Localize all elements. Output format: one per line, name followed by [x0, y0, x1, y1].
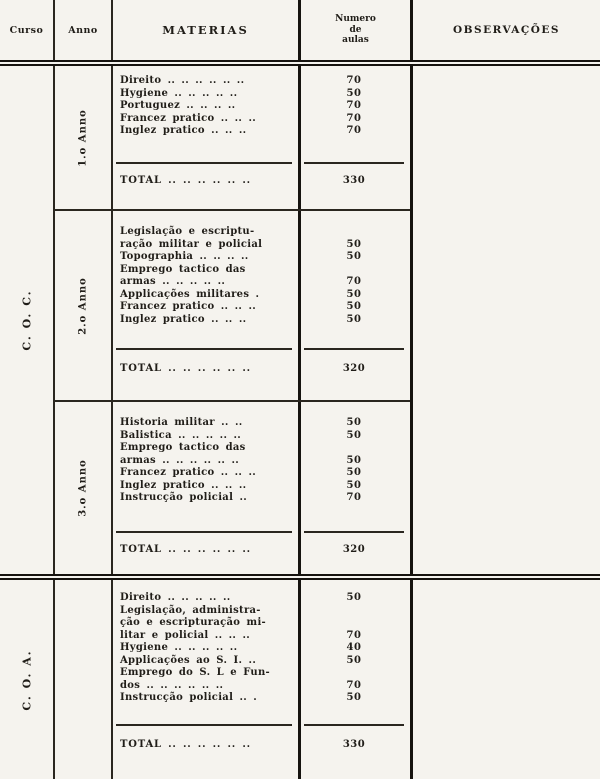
- header-materias: MATERIAS: [113, 0, 298, 60]
- header-numero-de-aulas: Numero de aulas: [298, 0, 410, 60]
- subject-list: Direito .. .. .. .. ..50Legislação, admi…: [113, 580, 410, 705]
- subject-hours: 50: [298, 592, 410, 605]
- materias-and-hours: Direito .. .. .. .. ..50Legislação, admi…: [113, 580, 410, 779]
- subject-row: Inglez pratico .. .. ..50: [113, 480, 410, 493]
- subject-list: Historia militar .. ..50Balistica .. .. …: [113, 402, 410, 505]
- total-row: TOTAL .. .. .. .. .. ..320: [113, 544, 410, 557]
- header-observacoes: OBSERVAÇÕES: [410, 0, 600, 60]
- subject-row: Hygiene .. .. .. .. ..40: [113, 642, 410, 655]
- subject-row: Instrucção policial .. .50: [113, 692, 410, 705]
- subject-name: Hygiene .. .. .. .. ..: [113, 88, 298, 101]
- subject-row: Instrucção policial ..70: [113, 492, 410, 505]
- subject-list: Direito .. .. .. .. .. ..70Hygiene .. ..…: [113, 66, 410, 138]
- total-label: TOTAL .. .. .. .. .. ..: [113, 363, 298, 376]
- subject-hours: 50: [298, 467, 410, 480]
- header-observacoes-label: OBSERVAÇÕES: [453, 24, 560, 36]
- subject-name: Francez pratico .. .. ..: [113, 467, 298, 480]
- total-row: TOTAL .. .. .. .. .. ..330: [113, 175, 410, 188]
- subject-name: Instrucção policial .. .: [113, 692, 298, 705]
- year-section: Direito .. .. .. .. ..50Legislação, admi…: [55, 580, 600, 779]
- subject-name: Applicações militares .: [113, 289, 298, 302]
- subject-row: Legislação e escriptu- ração militar e p…: [113, 226, 410, 251]
- observacoes-cell: [410, 66, 600, 211]
- curso-label: C. O. C.: [20, 289, 33, 350]
- course-group-body: Direito .. .. .. .. ..50Legislação, admi…: [55, 580, 600, 779]
- year-section: 1.o AnnoDireito .. .. .. .. .. ..70Hygie…: [55, 66, 600, 211]
- subject-hours: 50: [298, 314, 410, 327]
- subject-name: Direito .. .. .. .. .. ..: [113, 75, 298, 88]
- header-curso-label: Curso: [10, 25, 44, 36]
- total-divider: [113, 348, 410, 350]
- subject-hours: 70: [298, 125, 410, 138]
- total-divider-left-segment: [116, 162, 292, 164]
- subject-row: Portuguez .. .. .. ..70: [113, 100, 410, 113]
- total-label: TOTAL .. .. .. .. .. ..: [113, 739, 298, 752]
- subject-name: Hygiene .. .. .. .. ..: [113, 642, 298, 655]
- subject-hours: 70: [298, 680, 410, 693]
- subject-hours: 50: [298, 251, 410, 264]
- year-section: 2.o AnnoLegislação e escriptu- ração mil…: [55, 211, 600, 402]
- table-body: C. O. C.1.o AnnoDireito .. .. .. .. .. .…: [0, 66, 600, 779]
- subject-hours: 50: [298, 455, 410, 468]
- total-divider: [113, 531, 410, 533]
- year-section: 3.o AnnoHistoria militar .. ..50Balistic…: [55, 402, 600, 574]
- anno-label: 2.o Anno: [78, 277, 89, 335]
- subject-hours: 70: [298, 75, 410, 88]
- subject-name: Inglez pratico .. .. ..: [113, 314, 298, 327]
- subject-row: Emprego tactico das armas .. .. .. .. ..…: [113, 264, 410, 289]
- total-divider-left-segment: [116, 531, 292, 533]
- subject-hours: 50: [298, 655, 410, 668]
- header-numero-label: Numero de aulas: [335, 14, 376, 46]
- scanned-curriculum-table: Curso Anno MATERIAS Numero de aulas OBSE…: [0, 0, 600, 779]
- subject-row: Direito .. .. .. .. .. ..70: [113, 75, 410, 88]
- header-materias-label: MATERIAS: [162, 23, 249, 37]
- header-anno-label: Anno: [68, 25, 98, 36]
- total-hours: 330: [298, 175, 410, 188]
- subject-name: Instrucção policial ..: [113, 492, 298, 505]
- subject-row: Applicações militares .50: [113, 289, 410, 302]
- total-hours: 320: [298, 363, 410, 376]
- curso-cell: C. O. A.: [0, 580, 55, 779]
- materias-numero-divider-line: [298, 211, 301, 400]
- total-divider-left-segment: [116, 724, 292, 726]
- curso-cell: C. O. C.: [0, 66, 55, 574]
- total-row: TOTAL .. .. .. .. .. ..320: [113, 363, 410, 376]
- subject-row: Emprego do S. L e Fun- dos .. .. .. .. .…: [113, 667, 410, 692]
- subject-hours: 50: [298, 289, 410, 302]
- header-anno: Anno: [55, 0, 113, 60]
- subject-name: Francez pratico .. .. ..: [113, 113, 298, 126]
- total-hours: 330: [298, 739, 410, 752]
- subject-name: Balistica .. .. .. .. ..: [113, 430, 298, 443]
- observacoes-cell: [410, 402, 600, 574]
- subject-name: Inglez pratico .. .. ..: [113, 125, 298, 138]
- total-row: TOTAL .. .. .. .. .. ..330: [113, 739, 410, 752]
- materias-numero-divider-line: [298, 580, 301, 779]
- subject-name: Emprego tactico das armas .. .. .. .. ..…: [113, 442, 298, 467]
- total-divider: [113, 724, 410, 726]
- subject-name: Emprego tactico das armas .. .. .. .. ..: [113, 264, 298, 289]
- total-hours: 320: [298, 544, 410, 557]
- subject-row: Topographia .. .. .. ..50: [113, 251, 410, 264]
- subject-hours: 50: [298, 430, 410, 443]
- subject-row: Emprego tactico das armas .. .. .. .. ..…: [113, 442, 410, 467]
- subject-row: Historia militar .. ..50: [113, 417, 410, 430]
- subject-list: Legislação e escriptu- ração militar e p…: [113, 211, 410, 326]
- subject-hours: 70: [298, 630, 410, 643]
- subject-row: Applicações ao S. I. ..50: [113, 655, 410, 668]
- subject-row: Francez pratico .. .. ..50: [113, 301, 410, 314]
- anno-cell: [55, 580, 113, 779]
- subject-name: Historia militar .. ..: [113, 417, 298, 430]
- materias-numero-divider-line: [298, 66, 301, 209]
- subject-hours: 70: [298, 492, 410, 505]
- observacoes-cell: [410, 580, 600, 779]
- subject-row: Francez pratico .. .. ..70: [113, 113, 410, 126]
- subject-hours: 50: [298, 692, 410, 705]
- total-divider-right-segment: [304, 348, 404, 350]
- curso-label: C. O. A.: [20, 649, 33, 710]
- materias-and-hours: Legislação e escriptu- ração militar e p…: [113, 211, 410, 402]
- subject-name: Legislação e escriptu- ração militar e p…: [113, 226, 298, 251]
- header-curso: Curso: [0, 0, 55, 60]
- total-divider: [113, 162, 410, 164]
- subject-row: Hygiene .. .. .. .. ..50: [113, 88, 410, 101]
- observacoes-cell: [410, 211, 600, 402]
- subject-name: Francez pratico .. .. ..: [113, 301, 298, 314]
- subject-hours: 70: [298, 100, 410, 113]
- subject-row: Francez pratico .. .. ..50: [113, 467, 410, 480]
- subject-name: Portuguez .. .. .. ..: [113, 100, 298, 113]
- subject-row: Balistica .. .. .. .. ..50: [113, 430, 410, 443]
- total-divider-right-segment: [304, 531, 404, 533]
- subject-name: Topographia .. .. .. ..: [113, 251, 298, 264]
- subject-row: Legislação, administra- ção e escriptura…: [113, 605, 410, 643]
- subject-name: Inglez pratico .. .. ..: [113, 480, 298, 493]
- anno-cell: 3.o Anno: [55, 402, 113, 574]
- anno-cell: 2.o Anno: [55, 211, 113, 402]
- materias-and-hours: Historia militar .. ..50Balistica .. .. …: [113, 402, 410, 574]
- subject-row: Inglez pratico .. .. ..70: [113, 125, 410, 138]
- total-label: TOTAL .. .. .. .. .. ..: [113, 175, 298, 188]
- subject-hours: 50: [298, 239, 410, 252]
- course-group: C. O. A.Direito .. .. .. .. ..50Legislaç…: [0, 580, 600, 779]
- subject-hours: 50: [298, 417, 410, 430]
- course-group: C. O. C.1.o AnnoDireito .. .. .. .. .. .…: [0, 66, 600, 574]
- anno-label: 3.o Anno: [78, 459, 89, 517]
- total-divider-right-segment: [304, 724, 404, 726]
- table-header: Curso Anno MATERIAS Numero de aulas OBSE…: [0, 0, 600, 60]
- subject-hours: 50: [298, 88, 410, 101]
- course-group-body: 1.o AnnoDireito .. .. .. .. .. ..70Hygie…: [55, 66, 600, 574]
- subject-row: Inglez pratico .. .. ..50: [113, 314, 410, 327]
- subject-hours: 50: [298, 301, 410, 314]
- subject-hours: 50: [298, 480, 410, 493]
- total-label: TOTAL .. .. .. .. .. ..: [113, 544, 298, 557]
- anno-cell: 1.o Anno: [55, 66, 113, 211]
- total-divider-left-segment: [116, 348, 292, 350]
- subject-name: Applicações ao S. I. ..: [113, 655, 298, 668]
- anno-label: 1.o Anno: [78, 109, 89, 167]
- subject-name: Legislação, administra- ção e escriptura…: [113, 605, 298, 643]
- subject-row: Direito .. .. .. .. ..50: [113, 592, 410, 605]
- total-divider-right-segment: [304, 162, 404, 164]
- materias-and-hours: Direito .. .. .. .. .. ..70Hygiene .. ..…: [113, 66, 410, 211]
- subject-name: Emprego do S. L e Fun- dos .. .. .. .. .…: [113, 667, 298, 692]
- subject-hours: 40: [298, 642, 410, 655]
- subject-hours: 70: [298, 113, 410, 126]
- subject-name: Direito .. .. .. .. ..: [113, 592, 298, 605]
- materias-numero-divider-line: [298, 402, 301, 574]
- subject-hours: 70: [298, 276, 410, 289]
